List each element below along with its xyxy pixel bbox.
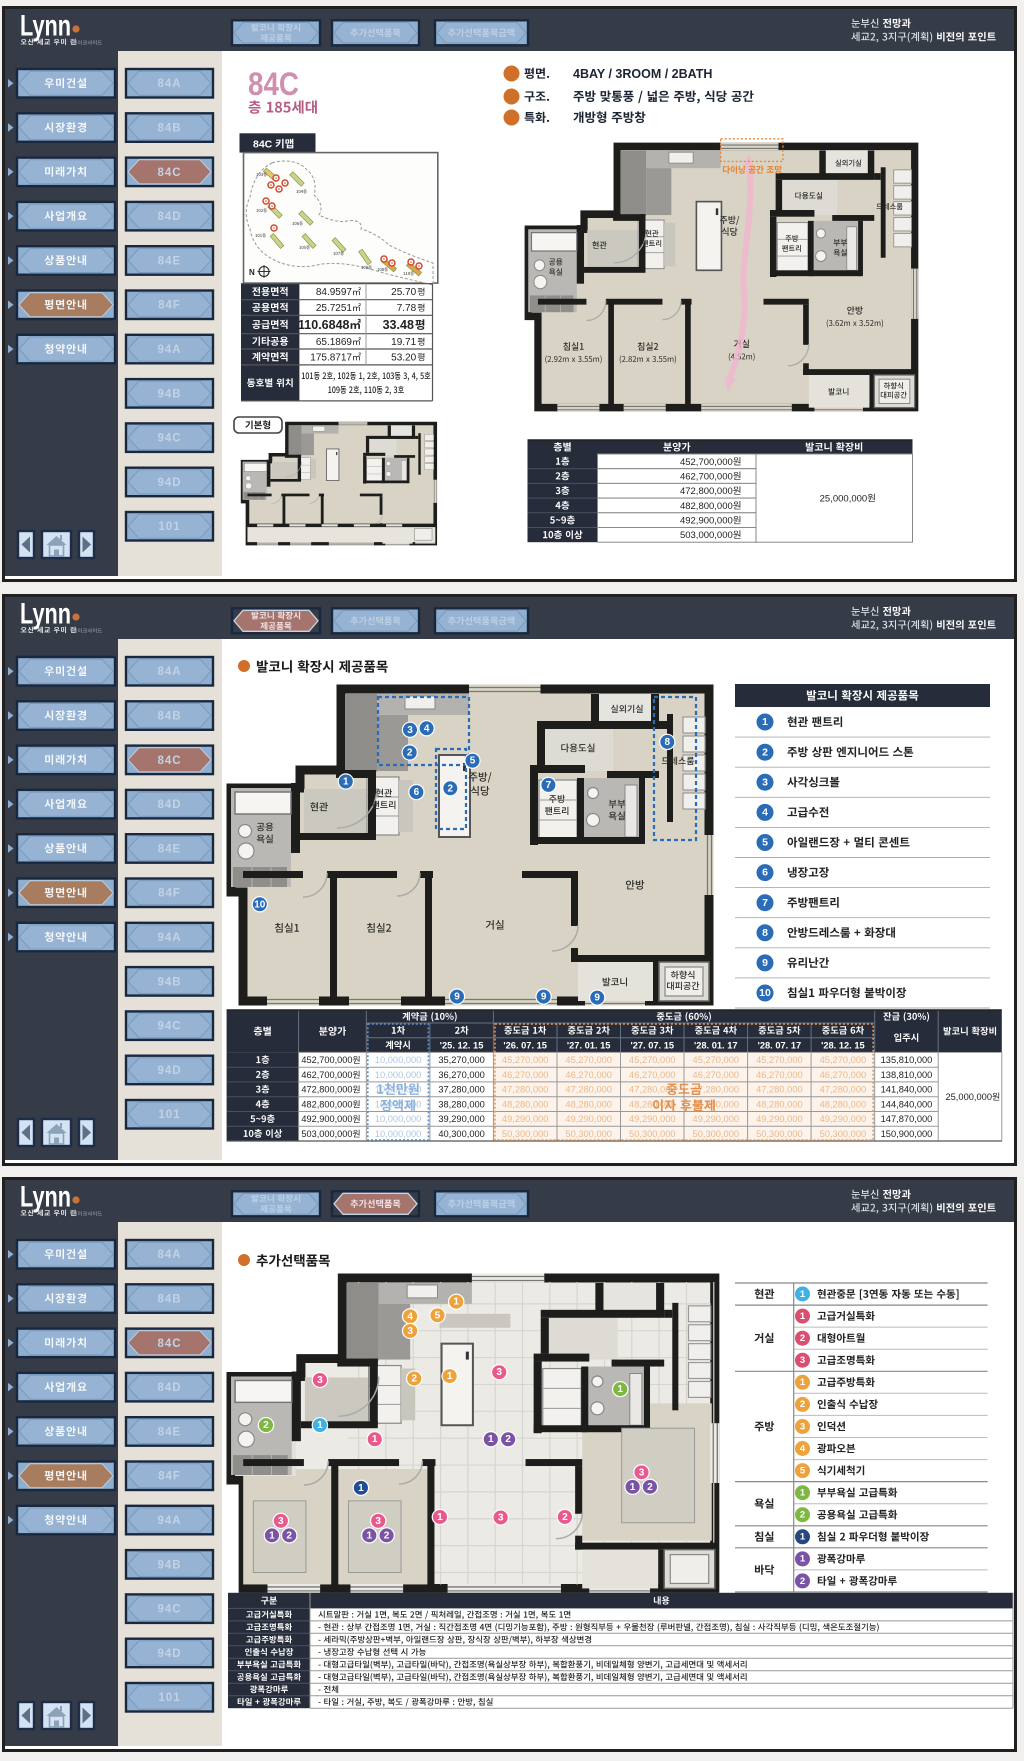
svg-text:46,270,000: 46,270,000: [820, 1070, 867, 1080]
svg-text:4: 4: [407, 1311, 413, 1322]
svg-text:2: 2: [384, 1530, 390, 1541]
svg-text:2: 2: [505, 1434, 511, 1445]
svg-text:1: 1: [269, 1530, 275, 1541]
svg-text:1: 1: [366, 1530, 372, 1541]
svg-text:50,300,000: 50,300,000: [629, 1129, 676, 1139]
svg-text:48,280,000: 48,280,000: [820, 1099, 867, 1109]
svg-text:Lynn: Lynn: [20, 598, 71, 631]
svg-text:10,000,000: 10,000,000: [375, 1129, 422, 1139]
svg-text:50,300,000: 50,300,000: [502, 1129, 549, 1139]
svg-text:84B: 84B: [157, 1294, 181, 1306]
svg-text:94A: 94A: [157, 1515, 181, 1527]
svg-text:5: 5: [762, 837, 768, 849]
svg-text:4BAY / 3ROOM / 2BATH: 4BAY / 3ROOM / 2BATH: [573, 67, 712, 81]
svg-text:'27. 07. 15: '27. 07. 15: [631, 1040, 675, 1050]
svg-text:175.8717: 175.8717: [310, 352, 352, 363]
svg-text:3: 3: [407, 1326, 413, 1337]
svg-text:1: 1: [800, 1377, 806, 1388]
svg-text:50,300,000: 50,300,000: [820, 1129, 867, 1139]
svg-text:94B: 94B: [157, 1559, 181, 1571]
svg-text:1: 1: [488, 1434, 494, 1445]
svg-text:5: 5: [800, 1465, 806, 1476]
svg-text:'27. 01. 15: '27. 01. 15: [567, 1040, 611, 1050]
svg-text:1: 1: [447, 1371, 453, 1382]
svg-text:10,000,000: 10,000,000: [375, 1114, 422, 1124]
svg-text:138,810,000: 138,810,000: [881, 1070, 933, 1080]
svg-text:8: 8: [665, 737, 671, 748]
svg-text:1: 1: [453, 1297, 459, 1308]
svg-text:2: 2: [411, 1374, 417, 1385]
svg-text:482,800,000: 482,800,000: [680, 501, 733, 512]
svg-text:36,270,000: 36,270,000: [438, 1070, 485, 1080]
svg-text:84E: 84E: [158, 843, 181, 855]
svg-text:1: 1: [800, 1532, 806, 1543]
svg-text:144,840,000: 144,840,000: [881, 1099, 933, 1109]
svg-text:6: 6: [762, 867, 768, 879]
svg-text:45,270,000: 45,270,000: [756, 1055, 803, 1065]
svg-text:45,270,000: 45,270,000: [820, 1055, 867, 1065]
svg-text:1: 1: [800, 1289, 806, 1300]
svg-text:46,270,000: 46,270,000: [502, 1070, 549, 1080]
svg-text:4: 4: [800, 1443, 806, 1454]
svg-text:46,270,000: 46,270,000: [629, 1070, 676, 1080]
svg-text:Lynn: Lynn: [20, 1181, 71, 1214]
svg-text:2: 2: [762, 746, 768, 758]
svg-text:3: 3: [800, 1355, 805, 1366]
svg-text:1: 1: [617, 1384, 623, 1395]
svg-text:1: 1: [343, 777, 349, 788]
svg-text:462,700,000: 462,700,000: [680, 471, 733, 482]
svg-text:150,900,000: 150,900,000: [881, 1129, 933, 1139]
svg-text:39,290,000: 39,290,000: [438, 1114, 485, 1124]
svg-text:33.48: 33.48: [383, 318, 414, 332]
svg-text:492,900,000: 492,900,000: [301, 1114, 352, 1124]
svg-text:101: 101: [158, 521, 180, 533]
svg-text:10,000,000: 10,000,000: [375, 1070, 422, 1080]
svg-text:25,000,000: 25,000,000: [820, 494, 868, 505]
svg-text:46,270,000: 46,270,000: [756, 1070, 803, 1080]
svg-text:472,800,000: 472,800,000: [301, 1085, 352, 1095]
svg-text:503,000,000: 503,000,000: [680, 530, 733, 541]
svg-text:503,000,000: 503,000,000: [301, 1129, 352, 1139]
svg-text:94D: 94D: [157, 1065, 181, 1077]
svg-text:9: 9: [541, 992, 547, 1003]
svg-text:6: 6: [414, 787, 420, 798]
svg-text:4: 4: [424, 723, 430, 734]
svg-text:'28. 07. 17: '28. 07. 17: [758, 1040, 802, 1050]
svg-text:3: 3: [498, 1513, 504, 1524]
svg-text:1: 1: [800, 1554, 806, 1565]
svg-text:3: 3: [496, 1367, 502, 1378]
svg-text:10: 10: [254, 899, 266, 910]
svg-text:3: 3: [407, 725, 413, 736]
svg-text:47,280,000: 47,280,000: [565, 1085, 612, 1095]
svg-text:49,290,000: 49,290,000: [756, 1114, 803, 1124]
svg-text:8: 8: [762, 927, 768, 939]
svg-text:'26. 07. 15: '26. 07. 15: [503, 1040, 547, 1050]
svg-text:84C: 84C: [248, 66, 299, 102]
svg-text:37,280,000: 37,280,000: [438, 1085, 485, 1095]
svg-text:94C: 94C: [157, 1021, 181, 1033]
svg-text:84F: 84F: [158, 300, 181, 312]
svg-text:47,280,000: 47,280,000: [756, 1085, 803, 1095]
svg-text:48,280,000: 48,280,000: [502, 1099, 549, 1109]
svg-text:84D: 84D: [157, 799, 181, 811]
svg-text:101: 101: [158, 1109, 180, 1121]
svg-text:2: 2: [800, 1576, 805, 1587]
svg-text:45,270,000: 45,270,000: [629, 1055, 676, 1065]
svg-text:9: 9: [594, 993, 600, 1004]
svg-text:3: 3: [639, 1467, 645, 1478]
svg-text:462,700,000: 462,700,000: [301, 1070, 352, 1080]
svg-text:84E: 84E: [158, 255, 181, 267]
svg-text:94A: 94A: [157, 932, 181, 944]
svg-text:49,290,000: 49,290,000: [820, 1114, 867, 1124]
svg-text:2: 2: [800, 1333, 805, 1344]
svg-text:5: 5: [470, 756, 476, 767]
svg-text:84F: 84F: [158, 1471, 181, 1483]
svg-text:94B: 94B: [157, 388, 181, 400]
svg-text:N: N: [249, 268, 255, 277]
svg-text:1: 1: [317, 1420, 323, 1431]
svg-text:452,700,000: 452,700,000: [680, 457, 733, 468]
svg-text:38,280,000: 38,280,000: [438, 1099, 485, 1109]
svg-text:84.9597: 84.9597: [316, 287, 353, 298]
svg-text:35,270,000: 35,270,000: [438, 1055, 485, 1065]
svg-text:Lynn: Lynn: [20, 10, 71, 43]
svg-text:3: 3: [317, 1375, 323, 1386]
svg-text:49,290,000: 49,290,000: [502, 1114, 549, 1124]
svg-text:7.78: 7.78: [397, 303, 417, 314]
svg-text:2: 2: [800, 1399, 805, 1410]
svg-text:135,810,000: 135,810,000: [881, 1055, 933, 1065]
svg-text:2: 2: [562, 1512, 568, 1523]
svg-text:94C: 94C: [157, 1604, 181, 1616]
svg-text:1: 1: [358, 1483, 364, 1494]
svg-text:46,270,000: 46,270,000: [693, 1070, 740, 1080]
svg-text:47,280,000: 47,280,000: [502, 1085, 549, 1095]
svg-text:45,270,000: 45,270,000: [502, 1055, 549, 1065]
svg-text:49,290,000: 49,290,000: [693, 1114, 740, 1124]
svg-text:94A: 94A: [157, 344, 181, 356]
svg-text:84C: 84C: [157, 167, 181, 179]
svg-text:141,840,000: 141,840,000: [881, 1085, 933, 1095]
svg-text:50,300,000: 50,300,000: [565, 1129, 612, 1139]
svg-text:45,270,000: 45,270,000: [693, 1055, 740, 1065]
svg-text:19.71: 19.71: [391, 337, 416, 348]
svg-text:94D: 94D: [157, 477, 181, 489]
svg-text:1: 1: [630, 1482, 636, 1493]
svg-text:3: 3: [278, 1516, 284, 1527]
svg-text:7: 7: [762, 897, 768, 909]
svg-text:147,870,000: 147,870,000: [881, 1114, 933, 1124]
svg-text:50,300,000: 50,300,000: [693, 1129, 740, 1139]
svg-text:492,900,000: 492,900,000: [680, 516, 733, 527]
svg-text:9: 9: [454, 992, 460, 1003]
svg-text:25,000,000: 25,000,000: [945, 1092, 992, 1102]
svg-text:84A: 84A: [157, 78, 181, 90]
svg-text:65.1869: 65.1869: [316, 337, 353, 348]
svg-text:3: 3: [375, 1516, 381, 1527]
svg-text:84F: 84F: [158, 888, 181, 900]
svg-text:7: 7: [546, 780, 552, 791]
svg-text:'28. 12. 15: '28. 12. 15: [821, 1040, 865, 1050]
svg-text:84B: 84B: [157, 123, 181, 135]
svg-text:'28. 01. 17: '28. 01. 17: [694, 1040, 738, 1050]
svg-text:472,800,000: 472,800,000: [680, 486, 733, 497]
svg-text:1: 1: [800, 1488, 806, 1499]
svg-text:5: 5: [435, 1310, 441, 1321]
svg-text:84D: 84D: [157, 211, 181, 223]
svg-text:84D: 84D: [157, 1382, 181, 1394]
svg-text:1: 1: [372, 1434, 378, 1445]
svg-text:84C: 84C: [157, 755, 181, 767]
svg-text:49,290,000: 49,290,000: [565, 1114, 612, 1124]
svg-text:94B: 94B: [157, 976, 181, 988]
svg-text:9: 9: [762, 957, 768, 969]
svg-text:3: 3: [800, 1421, 805, 1432]
svg-text:452,700,000: 452,700,000: [301, 1055, 352, 1065]
svg-text:84A: 84A: [157, 666, 181, 678]
svg-text:40,300,000: 40,300,000: [438, 1129, 485, 1139]
svg-text:84C: 84C: [253, 139, 273, 151]
svg-text:53.20: 53.20: [391, 352, 416, 363]
svg-text:1: 1: [762, 716, 768, 728]
svg-text:94C: 94C: [157, 433, 181, 445]
svg-text:4: 4: [762, 807, 768, 819]
svg-text:10,000,000: 10,000,000: [375, 1055, 422, 1065]
svg-text:2: 2: [647, 1482, 653, 1493]
svg-text:49,290,000: 49,290,000: [629, 1114, 676, 1124]
svg-text:110.6848: 110.6848: [298, 318, 349, 332]
svg-text:46,270,000: 46,270,000: [565, 1070, 612, 1080]
svg-text:25.70: 25.70: [391, 287, 416, 298]
svg-text:10: 10: [759, 987, 771, 999]
svg-text:48,280,000: 48,280,000: [756, 1099, 803, 1109]
svg-text:1: 1: [437, 1512, 443, 1523]
svg-text:101: 101: [158, 1692, 180, 1704]
svg-text:482,800,000: 482,800,000: [301, 1099, 352, 1109]
svg-text:84A: 84A: [157, 1249, 181, 1261]
svg-text:84C: 84C: [157, 1338, 181, 1350]
svg-text:45,270,000: 45,270,000: [565, 1055, 612, 1065]
svg-text:25.7251: 25.7251: [316, 303, 353, 314]
svg-text:50,300,000: 50,300,000: [756, 1129, 803, 1139]
svg-text:2: 2: [407, 748, 413, 759]
svg-text:47,280,000: 47,280,000: [820, 1085, 867, 1095]
svg-text:94D: 94D: [157, 1648, 181, 1660]
svg-text:48,280,000: 48,280,000: [565, 1099, 612, 1109]
svg-text:84E: 84E: [158, 1426, 181, 1438]
svg-text:2: 2: [286, 1530, 292, 1541]
svg-text:1: 1: [800, 1311, 806, 1322]
svg-text:2: 2: [263, 1420, 269, 1431]
svg-text:3: 3: [762, 776, 768, 788]
svg-text:2: 2: [448, 783, 454, 794]
svg-text:2: 2: [800, 1510, 805, 1521]
svg-text:'25. 12. 15: '25. 12. 15: [440, 1040, 484, 1050]
svg-text:84B: 84B: [157, 711, 181, 723]
